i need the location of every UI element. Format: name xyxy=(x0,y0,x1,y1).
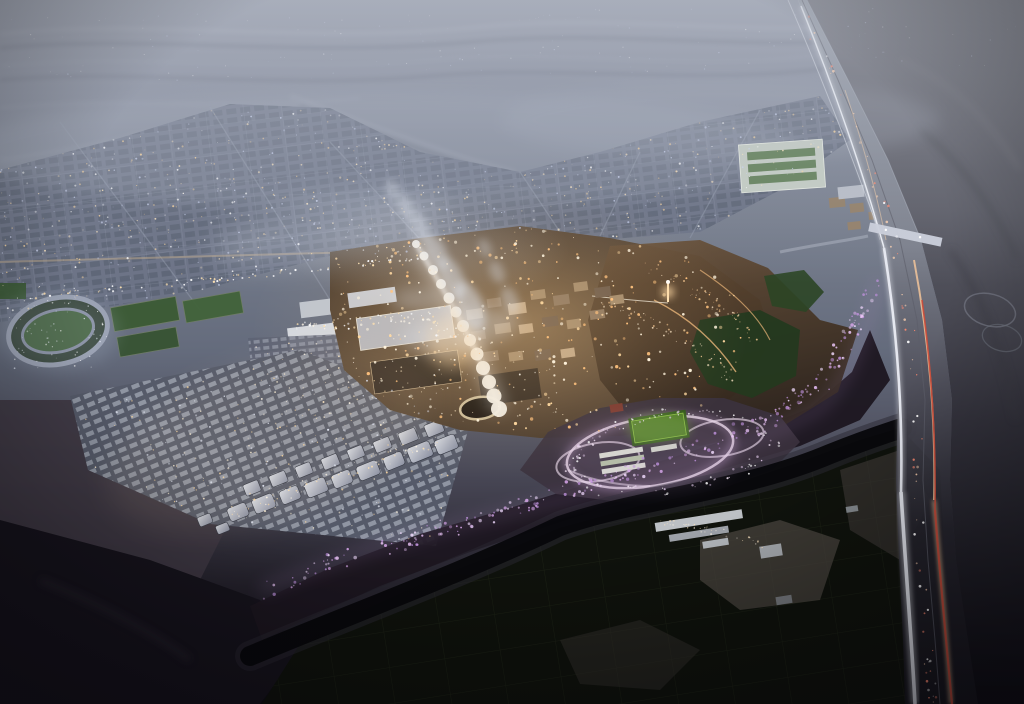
atmosphere xyxy=(0,0,1024,704)
masterplan-render-svg xyxy=(0,0,1024,704)
aerial-render xyxy=(0,0,1024,704)
vignette xyxy=(0,0,1024,704)
